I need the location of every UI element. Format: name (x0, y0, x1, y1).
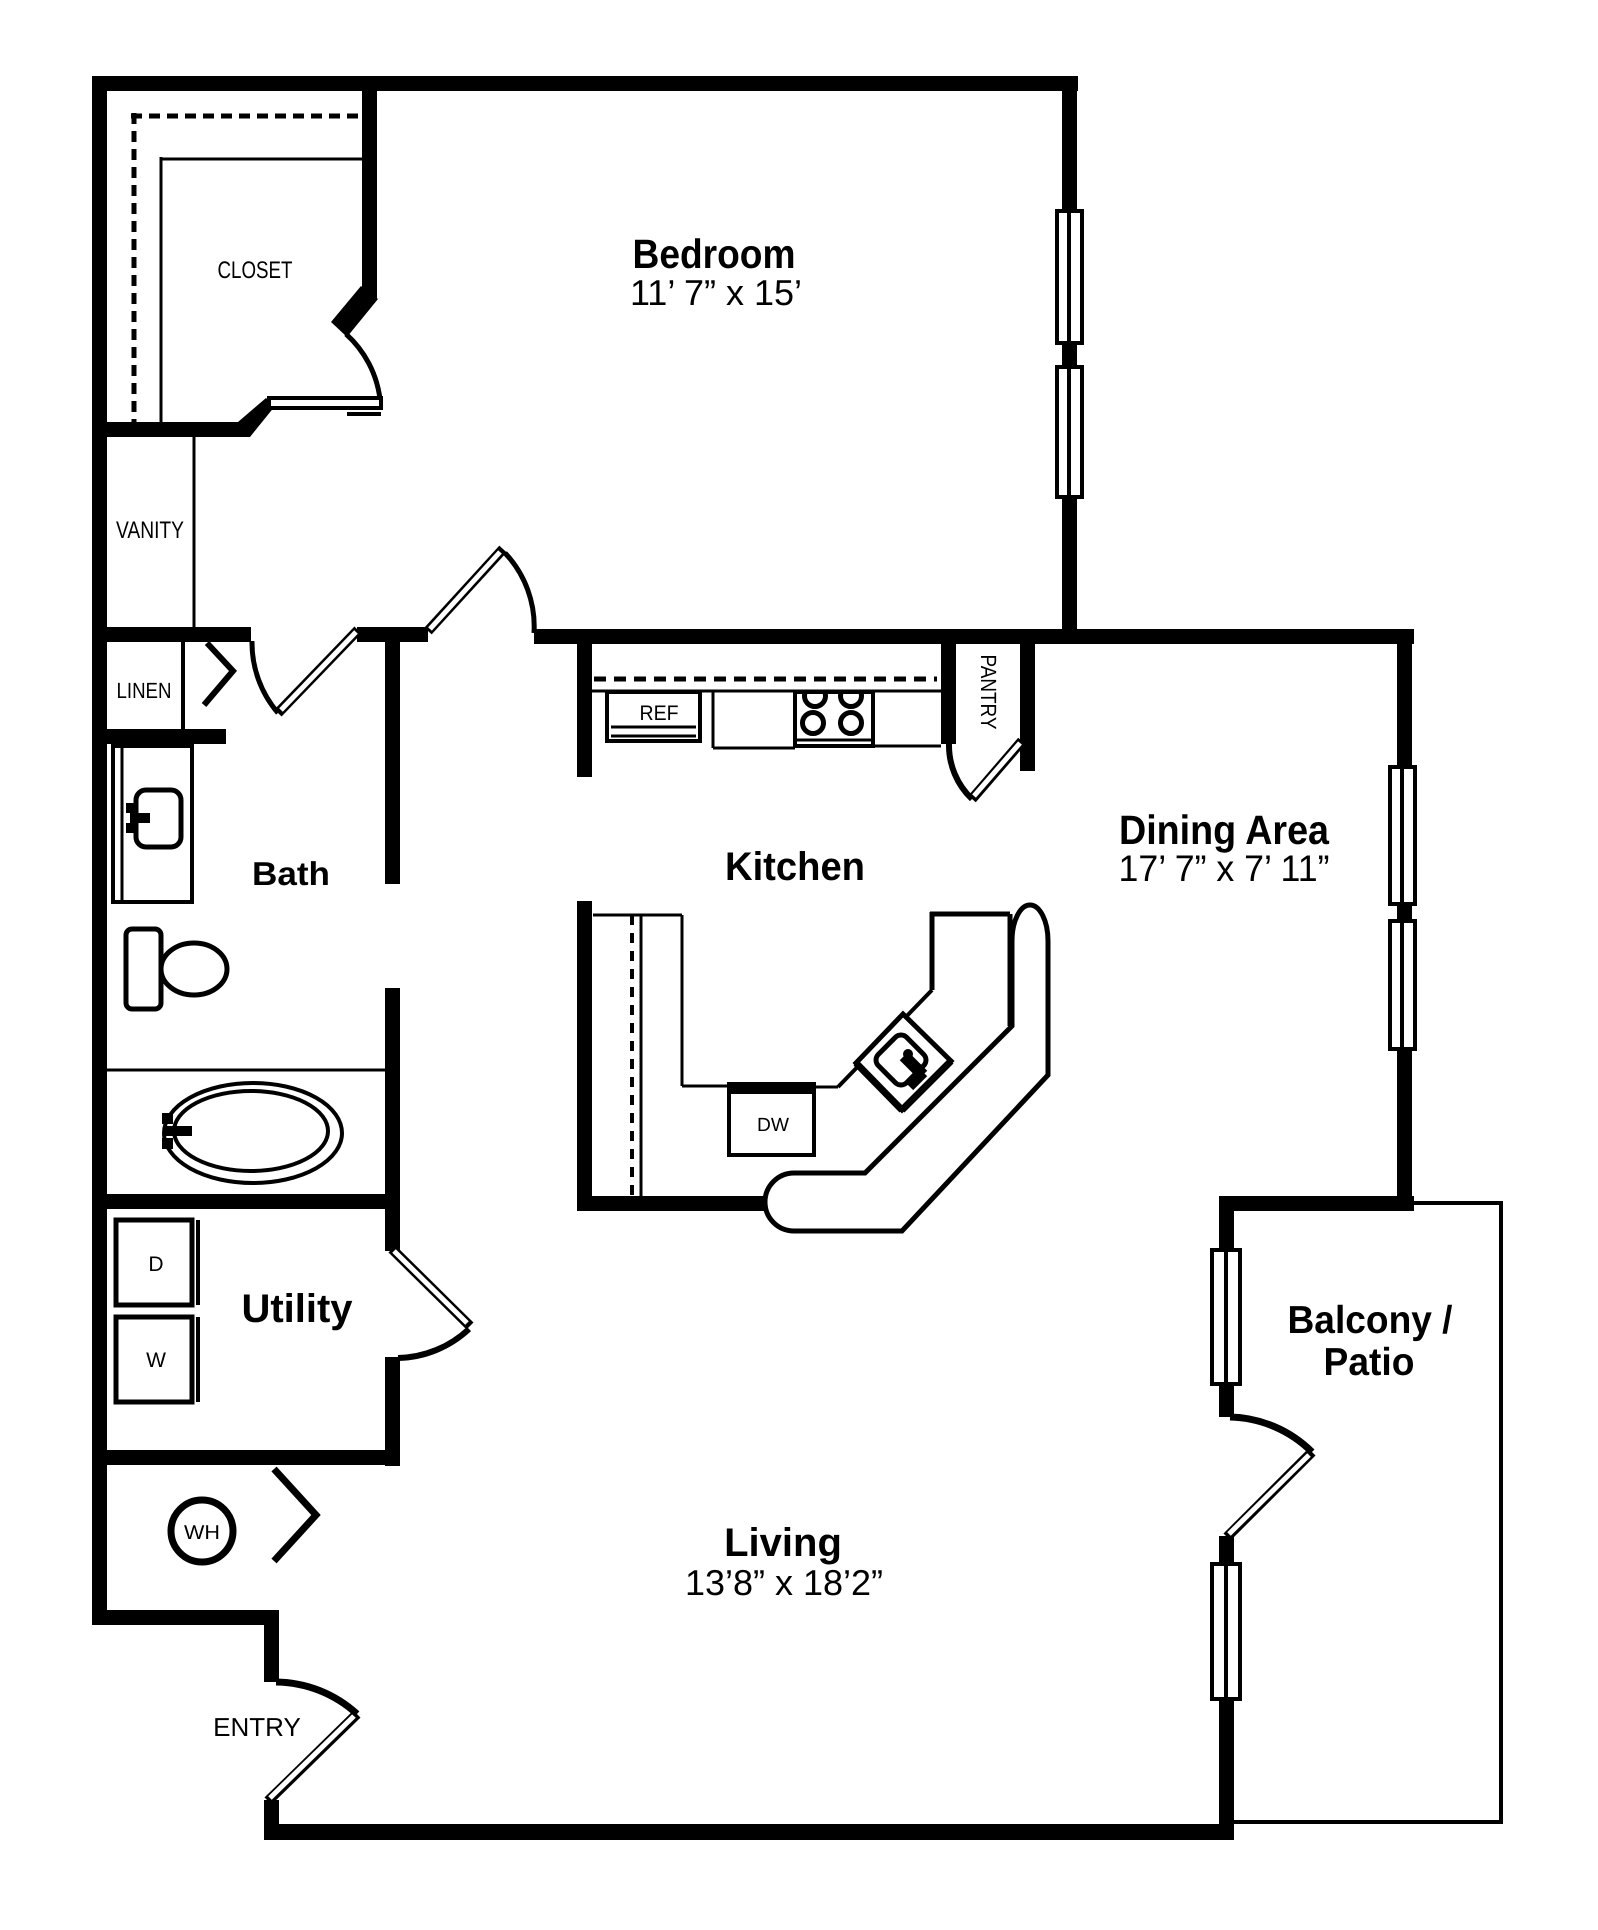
svg-text:PANTRY: PANTRY (976, 655, 1001, 730)
svg-text:ENTRY: ENTRY (213, 1712, 301, 1742)
svg-text:CLOSET: CLOSET (218, 257, 293, 284)
svg-text:LINEN: LINEN (117, 678, 172, 703)
svg-text:Living: Living (724, 1521, 842, 1565)
svg-text:Balcony /: Balcony / (1288, 1299, 1453, 1342)
svg-text:17’ 7” x 7’ 11”: 17’ 7” x 7’ 11” (1119, 848, 1330, 889)
svg-text:W: W (146, 1349, 166, 1372)
svg-text:REF: REF (640, 702, 679, 725)
svg-text:Patio: Patio (1324, 1341, 1415, 1384)
svg-text:Dining Area: Dining Area (1119, 807, 1330, 853)
svg-text:11’ 7” x 15’: 11’ 7” x 15’ (630, 272, 802, 313)
svg-text:DW: DW (757, 1115, 789, 1136)
svg-text:Bath: Bath (252, 855, 330, 892)
svg-text:Bedroom: Bedroom (633, 231, 796, 277)
svg-text:Kitchen: Kitchen (725, 845, 865, 889)
svg-text:13’8” x 18’2”: 13’8” x 18’2” (685, 1562, 883, 1603)
svg-text:D: D (148, 1253, 163, 1276)
svg-text:VANITY: VANITY (116, 517, 184, 544)
svg-text:Utility: Utility (241, 1287, 353, 1331)
svg-text:WH: WH (184, 1522, 220, 1544)
